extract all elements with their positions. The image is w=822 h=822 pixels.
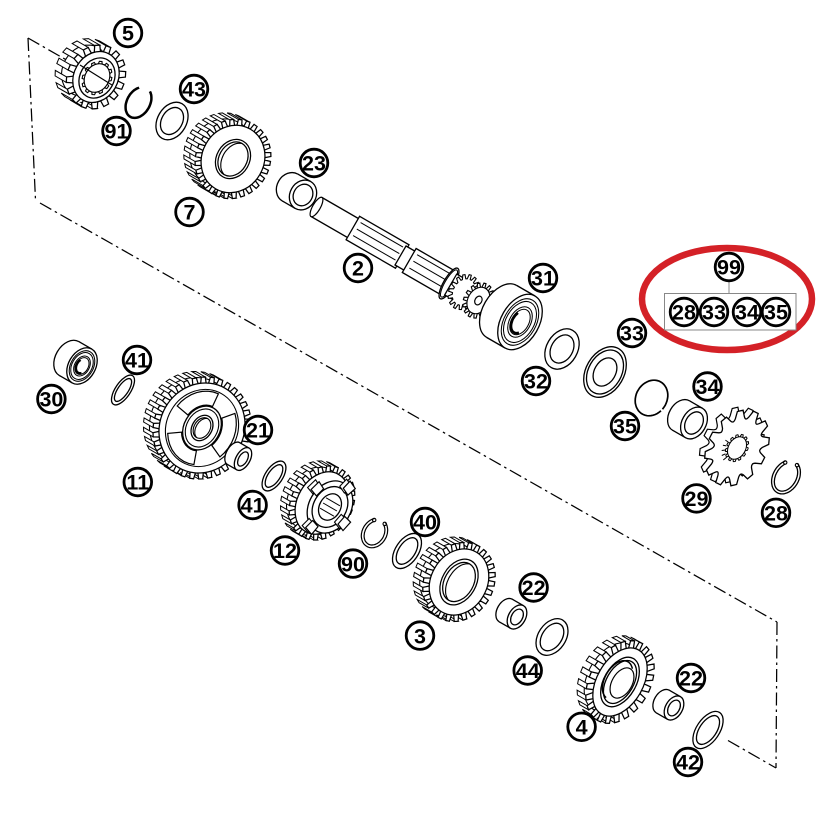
- svg-text:91: 91: [105, 120, 129, 144]
- svg-text:23: 23: [302, 152, 326, 176]
- svg-text:44: 44: [516, 659, 540, 683]
- svg-text:35: 35: [613, 415, 637, 439]
- svg-text:43: 43: [182, 78, 206, 102]
- svg-text:33: 33: [620, 322, 644, 346]
- svg-text:12: 12: [273, 539, 297, 563]
- svg-text:34: 34: [735, 301, 759, 325]
- svg-text:21: 21: [246, 419, 270, 443]
- svg-text:41: 41: [241, 494, 265, 518]
- svg-text:11: 11: [126, 471, 149, 495]
- svg-text:3: 3: [414, 624, 426, 648]
- svg-text:32: 32: [524, 370, 548, 394]
- svg-text:35: 35: [764, 301, 788, 325]
- svg-text:28: 28: [672, 301, 696, 325]
- svg-text:22: 22: [679, 667, 703, 691]
- svg-text:4: 4: [576, 716, 588, 740]
- svg-text:31: 31: [531, 267, 555, 291]
- svg-text:41: 41: [125, 349, 149, 373]
- svg-text:7: 7: [184, 201, 196, 225]
- svg-text:33: 33: [702, 301, 726, 325]
- svg-text:5: 5: [122, 22, 134, 46]
- svg-text:29: 29: [685, 487, 709, 511]
- svg-text:99: 99: [717, 256, 741, 280]
- svg-text:40: 40: [413, 511, 437, 535]
- svg-text:90: 90: [341, 552, 365, 576]
- svg-text:30: 30: [39, 388, 63, 412]
- svg-text:28: 28: [764, 502, 788, 526]
- svg-text:2: 2: [352, 257, 364, 281]
- svg-text:22: 22: [522, 576, 546, 600]
- svg-text:34: 34: [696, 375, 720, 399]
- svg-text:42: 42: [676, 751, 700, 775]
